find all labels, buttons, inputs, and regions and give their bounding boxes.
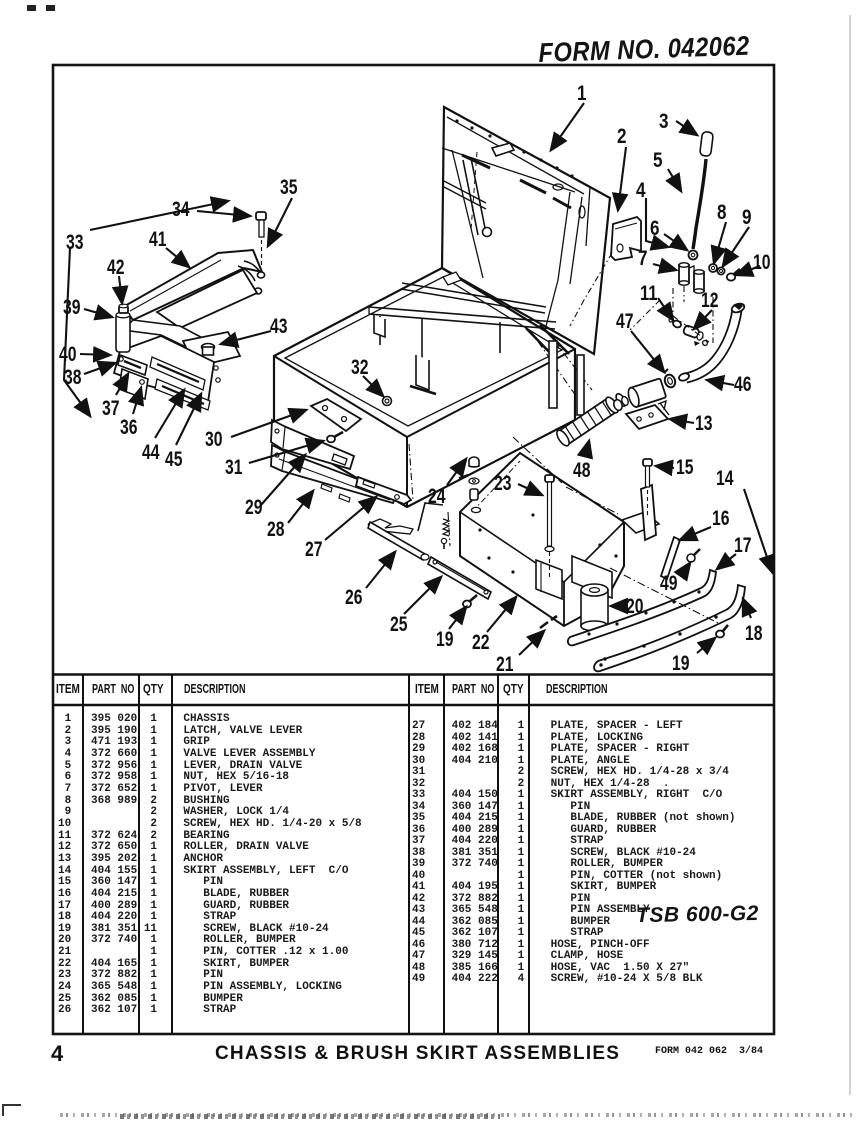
svg-text:17: 17 [734,534,752,557]
svg-text:15: 15 [676,456,694,479]
svg-text:13: 13 [695,412,713,435]
svg-text:23: 23 [494,472,512,495]
svg-text:14: 14 [716,467,734,490]
svg-text:8: 8 [717,201,727,224]
svg-text:27: 27 [305,538,323,561]
svg-text:38: 38 [64,366,82,389]
svg-text:39: 39 [63,296,81,319]
svg-text:19: 19 [672,652,690,675]
svg-text:9: 9 [742,206,752,229]
svg-text:5: 5 [653,149,663,172]
svg-text:22: 22 [472,631,490,654]
svg-text:11: 11 [640,282,658,305]
svg-text:33: 33 [66,231,84,254]
svg-text:28: 28 [267,518,285,541]
svg-text:42: 42 [107,256,125,279]
svg-text:45: 45 [165,448,183,471]
svg-text:16: 16 [712,507,730,530]
svg-text:21: 21 [496,653,514,676]
svg-text:48: 48 [573,459,591,482]
svg-text:37: 37 [102,397,120,420]
svg-text:32: 32 [351,356,369,379]
svg-text:36: 36 [120,416,138,439]
svg-text:20: 20 [626,595,644,618]
svg-text:7: 7 [638,247,648,270]
svg-text:30: 30 [205,428,223,451]
svg-text:46: 46 [734,373,752,396]
svg-text:47: 47 [616,310,634,333]
svg-text:26: 26 [345,586,363,609]
svg-text:40: 40 [59,343,77,366]
svg-text:41: 41 [149,228,167,251]
svg-text:3: 3 [659,110,669,133]
svg-text:1: 1 [577,82,587,105]
svg-text:18: 18 [745,622,763,645]
svg-text:2: 2 [617,125,627,148]
svg-text:19: 19 [436,628,454,651]
svg-text:43: 43 [270,315,288,338]
svg-text:29: 29 [245,496,263,519]
svg-text:4: 4 [636,179,646,202]
svg-text:10: 10 [753,251,771,274]
svg-text:24: 24 [428,485,446,508]
svg-text:49: 49 [660,572,678,595]
svg-text:34: 34 [172,198,190,221]
svg-text:12: 12 [701,289,719,312]
svg-text:44: 44 [142,441,160,464]
svg-text:35: 35 [280,176,298,199]
svg-text:6: 6 [650,217,660,240]
svg-text:25: 25 [390,613,408,636]
svg-text:31: 31 [225,456,243,479]
